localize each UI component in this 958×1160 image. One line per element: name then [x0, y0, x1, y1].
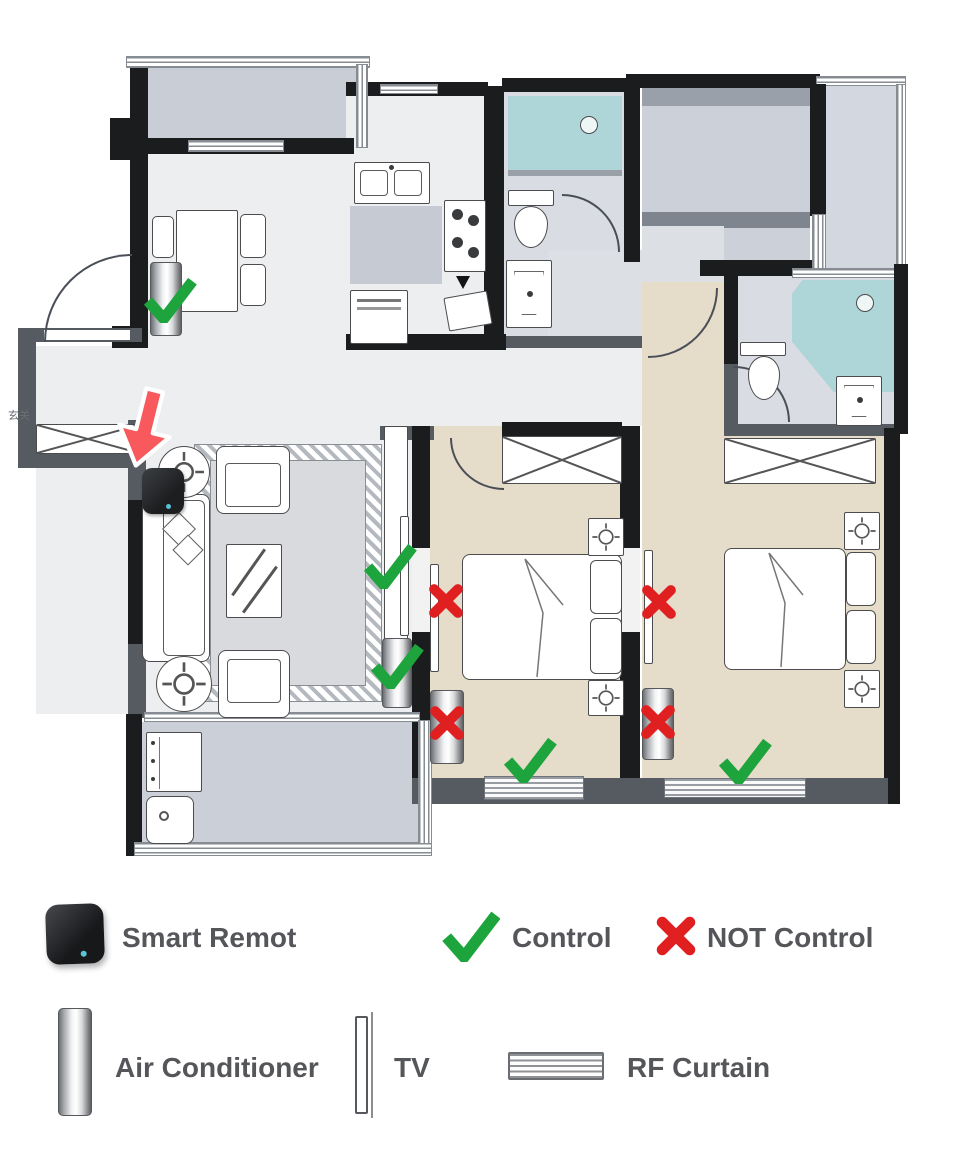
window: [188, 140, 284, 152]
shower-divider: [508, 170, 622, 176]
room-balcony-top-left: [134, 66, 356, 140]
showerhead-icon: [580, 116, 598, 134]
window: [134, 842, 432, 856]
air-conditioner-icon: [58, 1008, 92, 1116]
sofa: [142, 494, 210, 662]
nightstand: [844, 670, 880, 708]
smart-remote-icon: [45, 903, 105, 965]
wall-segment: [506, 336, 642, 348]
check-icon-curtain-bedroom-1: [503, 737, 557, 783]
wall-segment: [724, 264, 738, 364]
wall-segment: [502, 78, 632, 92]
bathroom-sink-2: [836, 376, 882, 426]
door-marker: [456, 276, 470, 289]
x-icon-ac-bedroom-1: [428, 704, 466, 742]
pillow: [846, 552, 876, 606]
wall-niche: [620, 548, 640, 632]
window: [816, 76, 906, 86]
armchair: [218, 650, 290, 718]
wardrobe-bedroom-2: [724, 438, 876, 484]
legend-smart-remote-label: Smart Remot: [122, 921, 296, 955]
toilet-tank-1: [508, 190, 554, 206]
check-icon-tv-living: [363, 543, 417, 589]
legend: Smart Remot Control NOT Control Air Cond…: [0, 880, 958, 1160]
entry-label: 玄关: [8, 410, 30, 422]
check-icon-ac-living: [370, 643, 424, 689]
wall-segment: [624, 84, 640, 262]
dining-chair: [240, 264, 266, 306]
dining-chair: [240, 214, 266, 258]
wall-segment: [18, 328, 36, 468]
window: [380, 84, 438, 94]
showerhead-icon: [856, 294, 874, 312]
rf-curtain-icon: [508, 1052, 604, 1080]
washing-machine: [146, 732, 202, 792]
wall-segment: [126, 714, 142, 856]
nightstand: [588, 518, 624, 556]
bathroom-sink-1: [506, 260, 552, 328]
wall-segment: [894, 264, 908, 434]
legend-control-label: Control: [512, 921, 612, 955]
check-icon-curtain-bedroom-2: [718, 738, 772, 784]
nightstand: [588, 680, 624, 716]
legend-not-control-label: NOT Control: [707, 921, 873, 955]
window: [896, 84, 906, 274]
window: [126, 56, 370, 68]
hallway: [412, 346, 642, 426]
green-check-icon: [442, 910, 500, 962]
red-x-icon: [654, 914, 698, 958]
x-icon-tv-bedroom-2: [640, 583, 678, 621]
side-table: [156, 656, 212, 712]
hall-bathroom-1: [548, 250, 642, 348]
storage-shelf: [642, 88, 810, 106]
wall-segment: [810, 84, 826, 216]
shower-area-1: [508, 96, 622, 170]
legend-air-conditioner-label: Air Conditioner: [115, 1051, 319, 1085]
legend-tv-label: TV: [394, 1051, 430, 1085]
dining-chair: [152, 216, 174, 258]
door-arc-entry: [44, 254, 132, 342]
kitchen-counter: [350, 206, 442, 284]
legend-rf-curtain-label: RF Curtain: [627, 1051, 770, 1085]
kitchen-stove: [444, 200, 486, 272]
wardrobe-bedroom-1: [502, 436, 622, 484]
coffee-table: [226, 544, 282, 618]
pillow: [590, 618, 622, 674]
wall-segment: [888, 778, 900, 804]
smart-remote-device: [142, 468, 184, 514]
balcony-cabinet: [146, 796, 194, 844]
page: 玄关: [0, 0, 958, 1160]
window: [356, 64, 368, 148]
armchair: [216, 446, 290, 514]
bed-bedroom-2: [724, 548, 846, 670]
nightstand: [844, 512, 880, 550]
x-icon-tv-bedroom-1: [427, 582, 465, 620]
wall-segment: [884, 428, 900, 804]
check-icon-ac-dining: [143, 277, 197, 323]
window: [812, 214, 826, 272]
tv-icon: [355, 1012, 377, 1118]
wall-segment: [626, 74, 820, 88]
kitchen-appliance: [350, 290, 408, 344]
window: [792, 268, 896, 278]
toilet-tank-2: [740, 342, 786, 356]
x-icon-ac-bedroom-2: [639, 703, 677, 741]
room-balcony-top-right: [820, 86, 898, 272]
kitchen-sink: [354, 162, 430, 204]
pillow: [590, 560, 622, 614]
pillow: [846, 610, 876, 664]
